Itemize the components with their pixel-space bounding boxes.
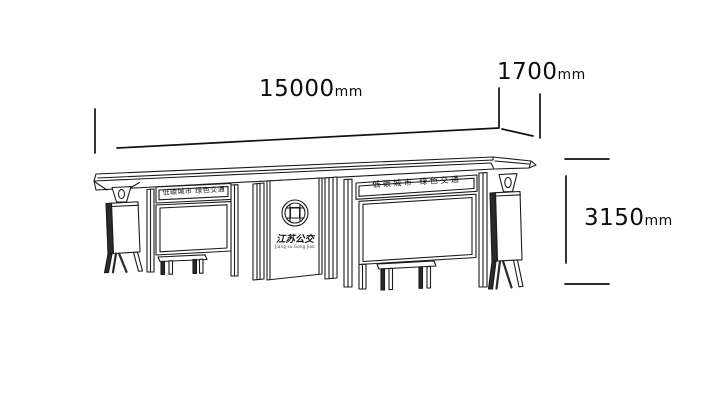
left-ad-panel (156, 202, 231, 255)
right-bracket (499, 174, 517, 192)
center-left-posts (253, 183, 264, 280)
roof-end-cap (493, 157, 536, 169)
left-bench (158, 255, 207, 275)
right-end-unit (489, 174, 524, 289)
center-sign-panel (267, 178, 322, 280)
height-dimension-unit: mm (645, 213, 673, 229)
height-dimension-value: 3150 (584, 205, 645, 231)
left-end-unit (105, 183, 143, 273)
depth-dimension-unit: mm (558, 67, 586, 83)
right-lightbox-legs (489, 260, 524, 289)
depth-dimension-line (502, 129, 533, 136)
left-lightbox-legs (105, 252, 143, 273)
drawing-canvas: 15000mm 1700mm 3150mm 低碳城市 绿色交通 低碳城市 绿色交… (0, 0, 720, 400)
width-dimension-value: 15000 (259, 76, 335, 102)
depth-dimension-label: 1700mm (497, 59, 586, 85)
brand-pinyin-label: Jiang su Gong Jiao (269, 244, 321, 249)
width-dimension-unit: mm (335, 84, 363, 100)
right-ad-panel (359, 194, 476, 264)
center-bay (253, 177, 337, 280)
depth-dimension-value: 1700 (497, 59, 558, 85)
right-bench (377, 261, 436, 290)
width-dimension-label: 15000mm (259, 76, 363, 102)
width-dimension-line (117, 128, 499, 148)
shelter-line-art (0, 0, 720, 400)
left-lightbox (112, 202, 141, 254)
brand-name-label: 江苏公交 (269, 231, 321, 245)
center-right-posts (325, 177, 337, 279)
right-lightbox (496, 192, 523, 262)
height-dimension-label: 3150mm (584, 205, 673, 231)
